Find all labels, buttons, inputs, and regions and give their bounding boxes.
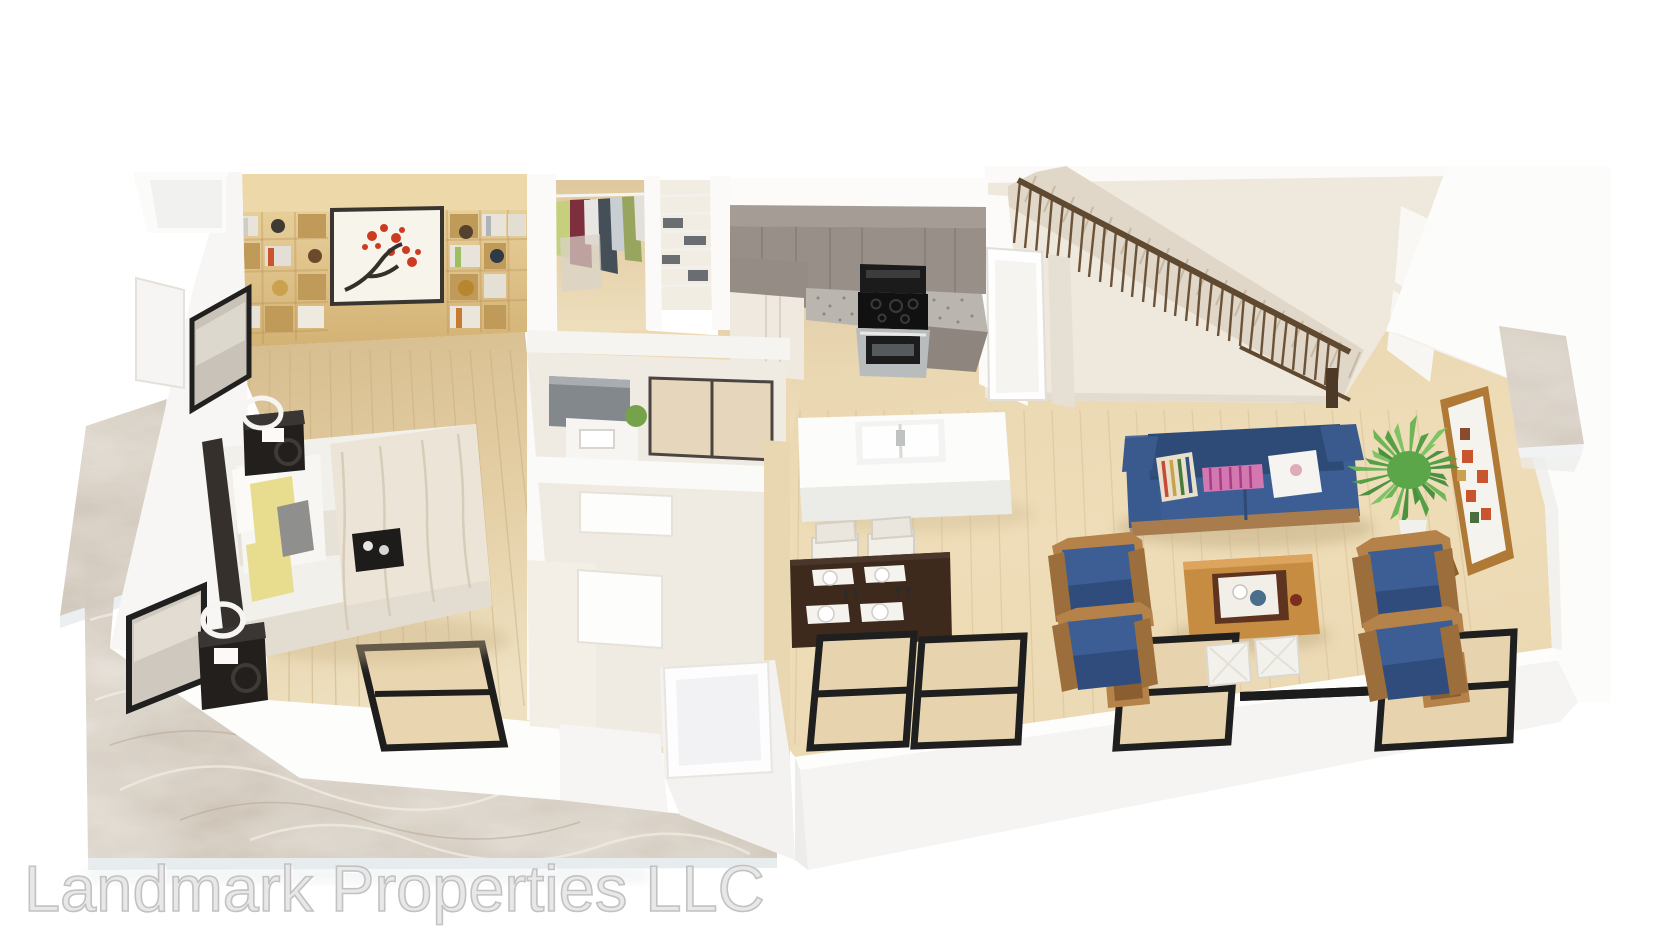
svg-text:Landmark Properties LLC: Landmark Properties LLC xyxy=(24,852,765,925)
